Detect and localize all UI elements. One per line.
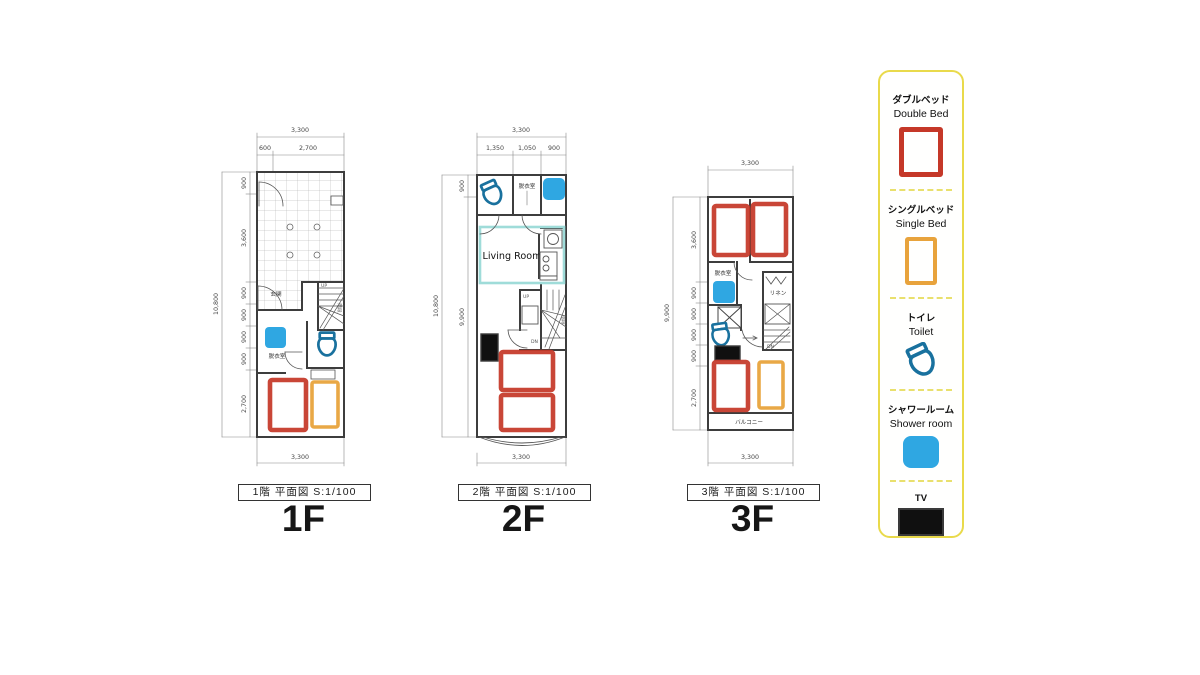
double-bed-icon xyxy=(899,127,943,177)
stairs-label: 階段 xyxy=(560,315,567,325)
stairs-label: 階段 xyxy=(336,303,343,313)
dims-3f-top xyxy=(708,166,793,197)
dim-text: 900 xyxy=(241,331,248,343)
shower-icon xyxy=(265,327,286,348)
dim-text: 2,700 xyxy=(241,395,248,413)
dims-1f-top xyxy=(257,133,344,172)
dim-text: 3,600 xyxy=(241,229,248,247)
double-bed-icon xyxy=(714,362,748,410)
toilet-icon xyxy=(900,342,942,377)
floorplan-sheet: 3,300 600 2,700 10,800 900 3,600 900 900… xyxy=(0,0,1200,675)
legend-divider xyxy=(890,389,952,391)
linen-label: リネン xyxy=(770,290,787,297)
dim-text: 9,900 xyxy=(459,308,466,326)
shower-icon xyxy=(543,178,565,200)
tv-icon xyxy=(481,334,498,361)
legend-shower-en: Shower room xyxy=(890,418,952,430)
dim-text: 900 xyxy=(241,309,248,321)
stairs-down-label: DN xyxy=(531,339,538,345)
dressing-label: 脱衣室 xyxy=(519,182,536,190)
dim-text: 2,700 xyxy=(691,389,698,407)
dim-text: 10,800 xyxy=(213,293,220,315)
double-bed-icon xyxy=(753,204,786,255)
dim-text: 3,300 xyxy=(741,160,759,167)
double-bed-icon xyxy=(501,395,553,430)
dim-text: 2,700 xyxy=(299,145,317,152)
legend-double-bed-en: Double Bed xyxy=(894,108,949,120)
garage-tile-floor xyxy=(258,173,343,282)
plans-drawing: 3,300 600 2,700 10,800 900 3,600 900 900… xyxy=(0,0,1200,675)
legend-shower-jp: シャワールーム xyxy=(888,402,954,416)
dim-text: 900 xyxy=(459,180,466,192)
kitchen-counter xyxy=(540,252,557,280)
legend-tv-jp: TV xyxy=(915,493,927,504)
legend-toilet-jp: トイレ xyxy=(907,310,936,324)
shower-icon xyxy=(903,436,939,469)
dim-text: 1,350 xyxy=(486,145,504,152)
balcony-label: バルコニー xyxy=(735,419,763,426)
tv-icon xyxy=(715,346,740,360)
dim-text: 3,600 xyxy=(691,231,698,249)
legend-single-bed-en: Single Bed xyxy=(896,218,947,230)
tv-icon xyxy=(898,508,944,536)
legend-divider xyxy=(890,189,952,191)
single-bed-icon xyxy=(759,362,783,408)
single-bed-icon xyxy=(312,382,338,427)
legend-panel: ダブルベッド Double Bed シングルベッド Single Bed トイレ… xyxy=(878,70,964,538)
dims-2f-top xyxy=(477,133,566,175)
dressing-label: 脱衣室 xyxy=(269,352,286,360)
stairs-up-label: UP xyxy=(523,294,529,300)
dim-text: 900 xyxy=(241,287,248,299)
dims-1f-left xyxy=(222,172,257,437)
single-bed-icon xyxy=(905,237,937,285)
bay-window-arc xyxy=(479,437,565,446)
wall-niche xyxy=(331,196,343,205)
toilet-icon xyxy=(479,179,504,207)
dim-text: 600 xyxy=(259,145,271,152)
dim-text: 3,300 xyxy=(741,454,759,461)
stairs-3f xyxy=(763,304,790,350)
dim-text: 900 xyxy=(691,308,698,320)
stairs-down-label: DN xyxy=(767,344,774,350)
dim-text: 3,300 xyxy=(512,454,530,461)
folding-door xyxy=(766,277,786,284)
legend-double-bed-jp: ダブルベッド xyxy=(892,92,949,106)
floor-plan-1f: 3,300 600 2,700 10,800 900 3,600 900 900… xyxy=(213,127,344,466)
dim-text: 1,050 xyxy=(518,145,536,152)
entrance-label: 玄関 xyxy=(270,290,282,298)
legend-divider xyxy=(890,480,952,482)
toilet-icon xyxy=(318,333,335,356)
dim-text: 900 xyxy=(241,353,248,365)
dressing-label: 脱衣室 xyxy=(715,269,732,277)
legend-single-bed-jp: シングルベッド xyxy=(888,202,955,216)
floor-label-3f: 3F xyxy=(687,498,818,540)
vanity-counter xyxy=(311,370,335,379)
dim-text: 900 xyxy=(548,145,560,152)
dim-text: 3,300 xyxy=(512,127,530,134)
dim-text: 900 xyxy=(691,329,698,341)
dim-text: 900 xyxy=(691,350,698,362)
dims-2f-left xyxy=(442,175,477,437)
dims-1f-bottom xyxy=(257,437,344,466)
legend-divider xyxy=(890,297,952,299)
washer-box xyxy=(544,230,562,248)
floor-plan-2f: 3,300 1,350 1,050 900 10,800 900 9,900 3… xyxy=(433,127,567,466)
floor-plan-3f: 3,300 9,900 3,600 900 900 900 900 2,700 … xyxy=(664,160,793,466)
double-bed-icon xyxy=(270,380,306,430)
dim-text: 3,300 xyxy=(291,454,309,461)
dim-text: 900 xyxy=(691,287,698,299)
double-bed-icon xyxy=(501,352,553,390)
stairs-up-label: UP xyxy=(321,283,327,289)
dim-text: 900 xyxy=(241,177,248,189)
dim-text: 3,300 xyxy=(291,127,309,134)
double-bed-icon xyxy=(714,206,748,255)
shower-icon xyxy=(713,281,735,303)
dim-text: 10,800 xyxy=(433,295,440,317)
dim-text: 9,900 xyxy=(664,304,671,322)
living-room-label: Living Room xyxy=(483,251,542,262)
floor-label-1f: 1F xyxy=(238,498,369,540)
doors-2f xyxy=(480,215,541,348)
floor-label-2f: 2F xyxy=(458,498,589,540)
legend-toilet-en: Toilet xyxy=(909,326,934,338)
toilet-icon xyxy=(711,323,730,347)
